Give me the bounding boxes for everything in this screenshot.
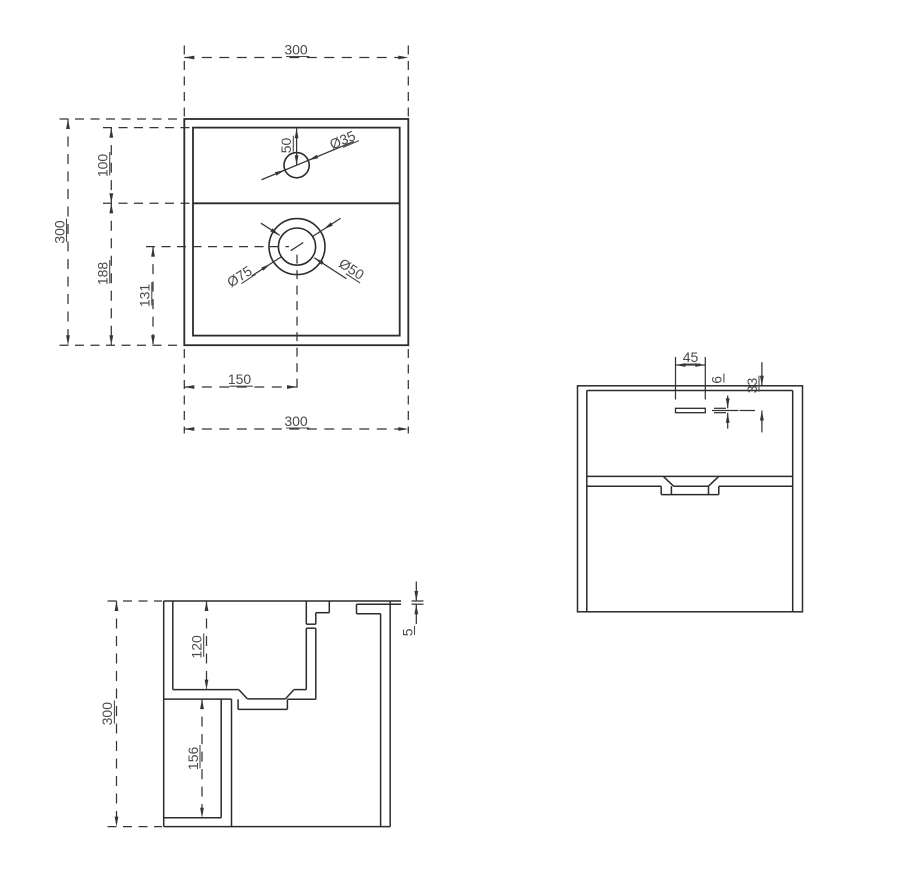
svg-text:45: 45 [683,349,699,365]
svg-text:5: 5 [399,628,415,636]
svg-text:120: 120 [189,635,205,659]
svg-text:188: 188 [95,262,111,286]
svg-text:6: 6 [709,376,725,384]
svg-text:131: 131 [137,284,153,308]
svg-text:50: 50 [278,138,294,154]
svg-text:300: 300 [284,413,308,429]
svg-text:150: 150 [228,371,252,387]
svg-text:300: 300 [284,41,308,57]
svg-text:33: 33 [744,378,760,394]
svg-text:300: 300 [51,220,67,244]
svg-text:100: 100 [95,154,111,178]
svg-text:300: 300 [99,702,115,726]
svg-text:156: 156 [185,747,201,771]
